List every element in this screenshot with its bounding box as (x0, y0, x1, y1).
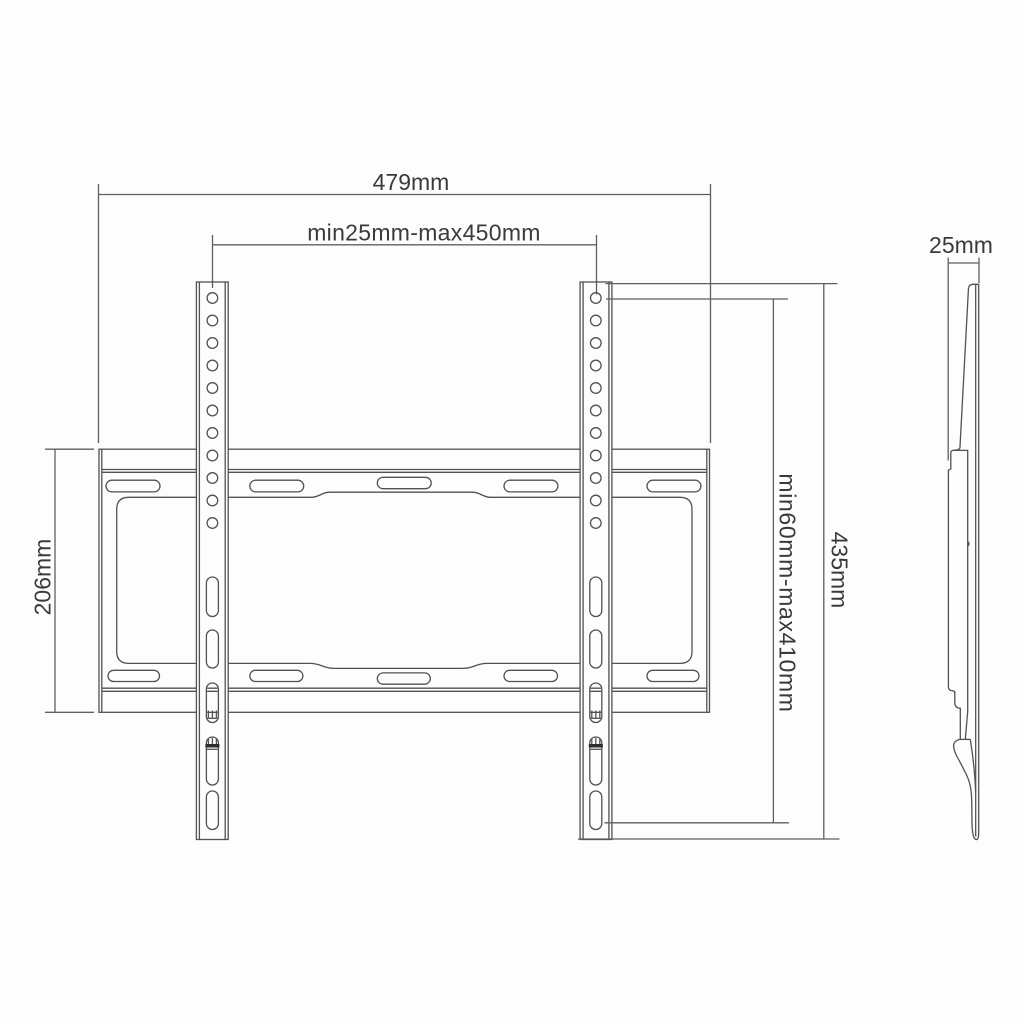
svg-text:25mm: 25mm (929, 232, 993, 258)
svg-text:435mm: 435mm (827, 532, 853, 609)
svg-text:min60mm-max410mm: min60mm-max410mm (775, 473, 801, 712)
svg-text:479mm: 479mm (373, 169, 450, 195)
svg-text:min25mm-max450mm: min25mm-max450mm (307, 220, 541, 246)
svg-text:206mm: 206mm (30, 539, 56, 616)
